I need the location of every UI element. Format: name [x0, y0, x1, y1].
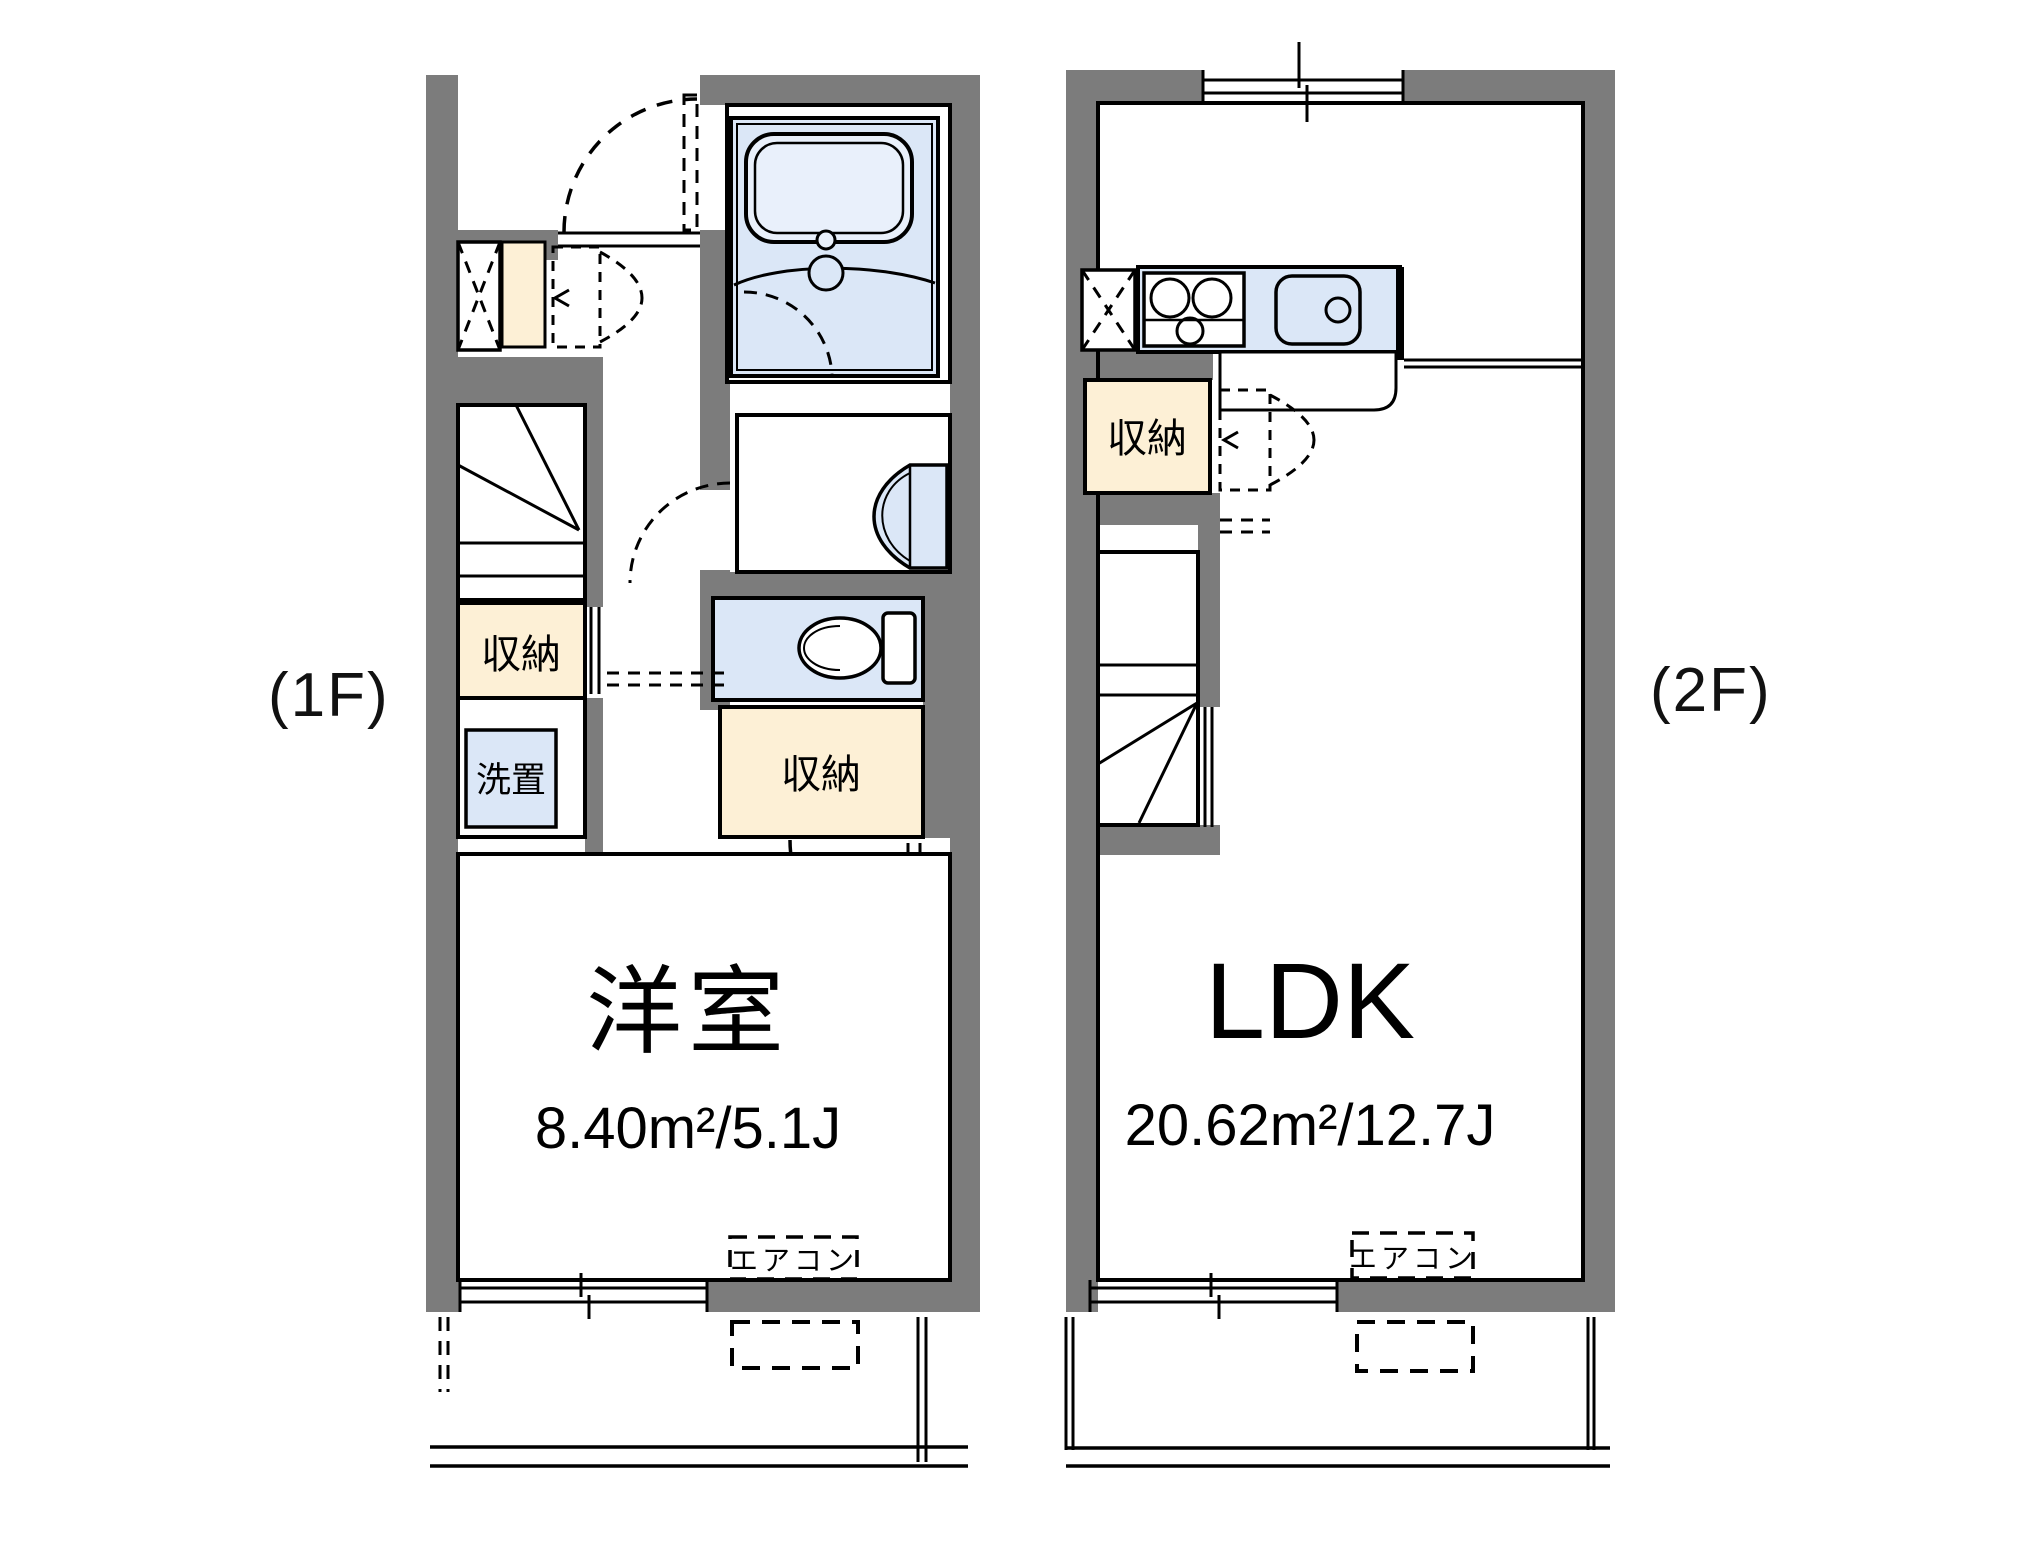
left-storage-label: 収納	[481, 633, 561, 677]
ldk-room: LDK 20.62m²/12.7J エアコン	[1125, 940, 1496, 1278]
hall-storage-label: 収納	[781, 753, 861, 797]
room-area-1f: 8.40m²/5.1J	[535, 1096, 841, 1161]
counter-end-panel	[1396, 267, 1404, 360]
pipe-space-box	[458, 242, 500, 350]
main-room: 洋室 8.40m²/5.1J エアコン	[458, 854, 950, 1280]
staircase-1f	[458, 405, 585, 600]
counter-return	[1220, 352, 1396, 410]
washer-room: 洗置	[458, 698, 585, 837]
balcony-1f	[430, 1317, 968, 1466]
room-area-2f: 20.62m²/12.7J	[1125, 1093, 1496, 1158]
ac-outdoor-unit-2f	[1357, 1322, 1473, 1371]
bathtub	[746, 134, 912, 242]
floorplan-1f: 収納 収納 洗置	[426, 70, 980, 1480]
room-name-1f: 洋室	[586, 959, 790, 1066]
washroom	[630, 415, 950, 583]
toilet-tank	[883, 613, 915, 683]
floorplan-2f: 収納 LDK 20.62m²/12.7J エアコン	[1066, 70, 1615, 1480]
door-arrow	[1224, 432, 1238, 448]
bath-faucet	[809, 256, 843, 290]
aircon-label-2f: エアコン	[1349, 1243, 1477, 1274]
floor2-label: (2F)	[1650, 655, 1772, 726]
entry-storage-box	[502, 242, 545, 347]
closet-folding-door	[553, 247, 600, 347]
entrance-door-swing-arc	[564, 99, 697, 232]
staircase-2f	[1098, 552, 1212, 827]
ac-outdoor-unit-1f	[732, 1322, 858, 1368]
toilet-room	[607, 598, 923, 700]
bathroom	[727, 105, 950, 382]
aircon-label-1f: エアコン	[730, 1245, 858, 1276]
washroom-door-swing-arc	[630, 483, 730, 583]
floorplan-1f-drawing: 収納 収納 洗置	[426, 70, 980, 1480]
storage-label-2f: 収納	[1107, 417, 1187, 461]
entrance-door-panel	[684, 95, 697, 230]
floorplan-page: { "colors": { "wall": "#7c7c7c", "fixtur…	[0, 0, 2031, 1543]
sink	[1276, 276, 1360, 344]
entrance-door	[558, 95, 700, 246]
window-2f-north	[1203, 42, 1403, 122]
floorplan-2f-drawing: 収納 LDK 20.62m²/12.7J エアコン	[1066, 70, 1615, 1480]
washer-label: 洗置	[476, 761, 546, 800]
balcony-2f	[1066, 1317, 1610, 1466]
left-storage: 収納	[458, 603, 599, 698]
floor1-label: (1F)	[268, 660, 390, 731]
door-arrow	[555, 290, 569, 306]
room-name-2f: LDK	[1205, 940, 1415, 1061]
bathtub-drain	[817, 231, 835, 249]
